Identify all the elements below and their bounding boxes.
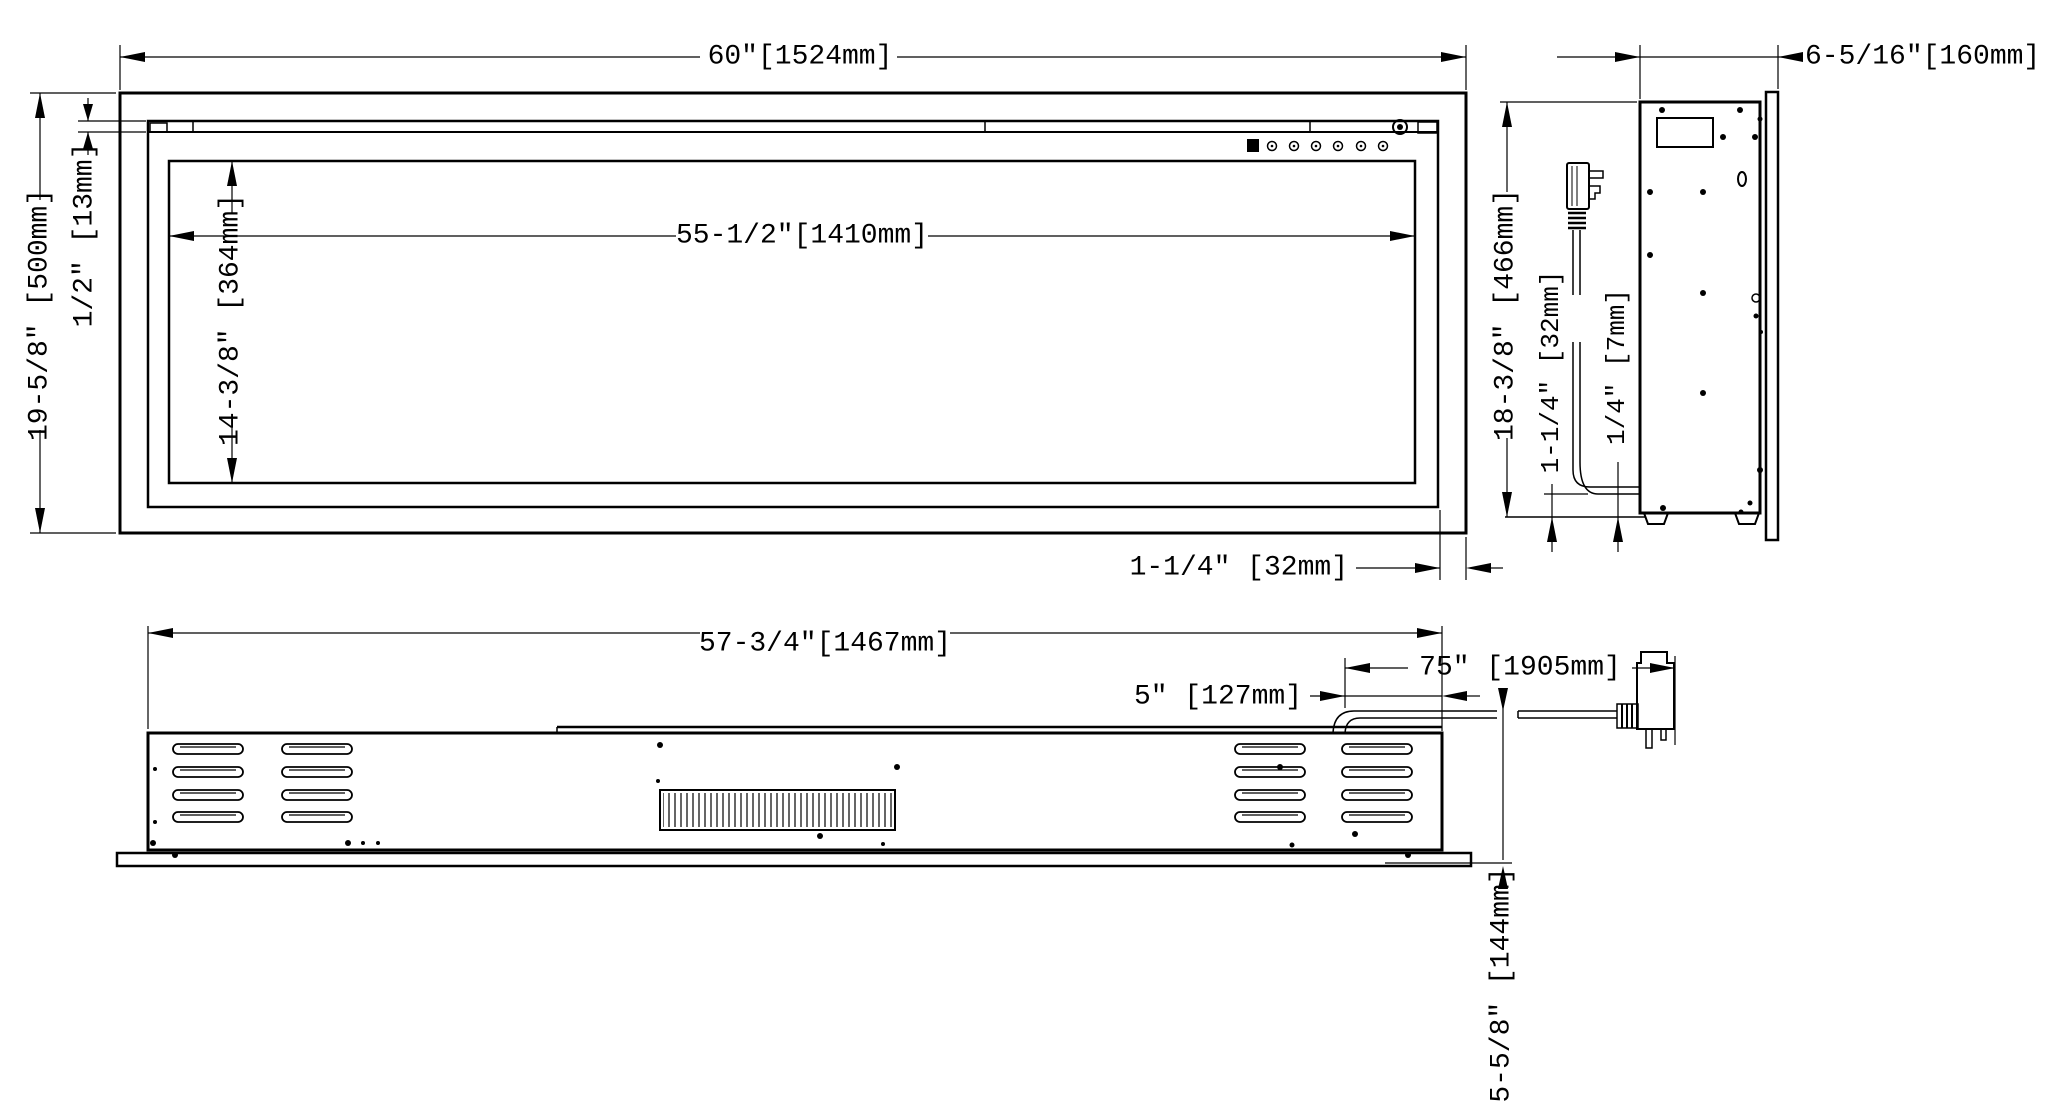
screw-dots — [1647, 107, 1763, 515]
side-front-flange — [1766, 92, 1778, 540]
dim-side-cord-offset — [1544, 484, 1588, 552]
label-rear-width: 57-3/4″[1467mm] — [699, 629, 951, 660]
control-buttons — [1268, 142, 1388, 151]
louver-vents-right — [1235, 744, 1412, 822]
cord-strain-relief — [1568, 213, 1586, 228]
label-front-overhang: 1-1/4″ [32mm] — [1130, 553, 1348, 584]
label-front-width: 60″[1524mm] — [708, 42, 893, 73]
front-flange-bar — [117, 853, 1471, 866]
label-side-cord-clearance: 1/4″ [7mm] — [1602, 289, 1632, 445]
power-plug-side — [1567, 163, 1603, 228]
label-front-height: 19-5/8″ [500mm] — [25, 189, 56, 441]
rating-label-plate — [1657, 118, 1713, 147]
dim-side-cord-clearance — [1613, 462, 1623, 552]
side-body — [1640, 102, 1760, 513]
fireplace-dimension-drawing: 60″[1524mm] 55-1/2″[1410mm] 19-5/8″ [500… — [0, 0, 2058, 1114]
technical-drawing-page: 60″[1524mm] 55-1/2″[1410mm] 19-5/8″ [500… — [0, 0, 2058, 1114]
label-rear-cord-length: 75″ [1905mm] — [1419, 653, 1621, 684]
dim-front-overhang — [1356, 510, 1503, 580]
rear-body — [148, 733, 1442, 850]
front-view — [30, 45, 1503, 580]
label-side-height: 18-3/8″ [466mm] — [1491, 189, 1522, 441]
control-panel — [1247, 120, 1437, 152]
heater-vent-grille — [660, 790, 895, 830]
plug-prong-icon — [1646, 729, 1652, 748]
plug-prong-icon — [1661, 729, 1666, 740]
keyhole-slot — [1738, 172, 1746, 186]
front-outer-frame — [120, 93, 1466, 533]
plug-prong-icon — [1589, 186, 1600, 199]
foot-right — [1735, 513, 1759, 524]
plug-prong-icon — [1589, 171, 1603, 178]
front-inner-frame — [148, 121, 1438, 507]
display-opening — [169, 161, 1415, 483]
label-side-cord-offset: 1-1/4″ [32mm] — [1536, 271, 1566, 474]
dimension-labels: 60″[1524mm] 55-1/2″[1410mm] 19-5/8″ [500… — [25, 42, 2041, 1103]
label-rear-cord-drop: 5-5/8″ [144mm] — [1487, 867, 1518, 1102]
louver-vents-left — [173, 744, 352, 822]
power-cord-rear — [1333, 711, 1617, 733]
label-side-depth: 6-5/16″[160mm] — [1805, 42, 2040, 73]
power-switch-icon — [1247, 139, 1259, 152]
label-rear-cord-inset: 5″ [127mm] — [1134, 682, 1302, 713]
label-front-opening-width: 55-1/2″[1410mm] — [676, 221, 928, 252]
foot-left — [1644, 513, 1668, 524]
label-front-ledge: 1/2″ [13mm] — [70, 143, 101, 328]
ledge-end-notch — [150, 123, 167, 132]
label-front-opening-height: 14-3/8″ [364mm] — [216, 194, 247, 446]
